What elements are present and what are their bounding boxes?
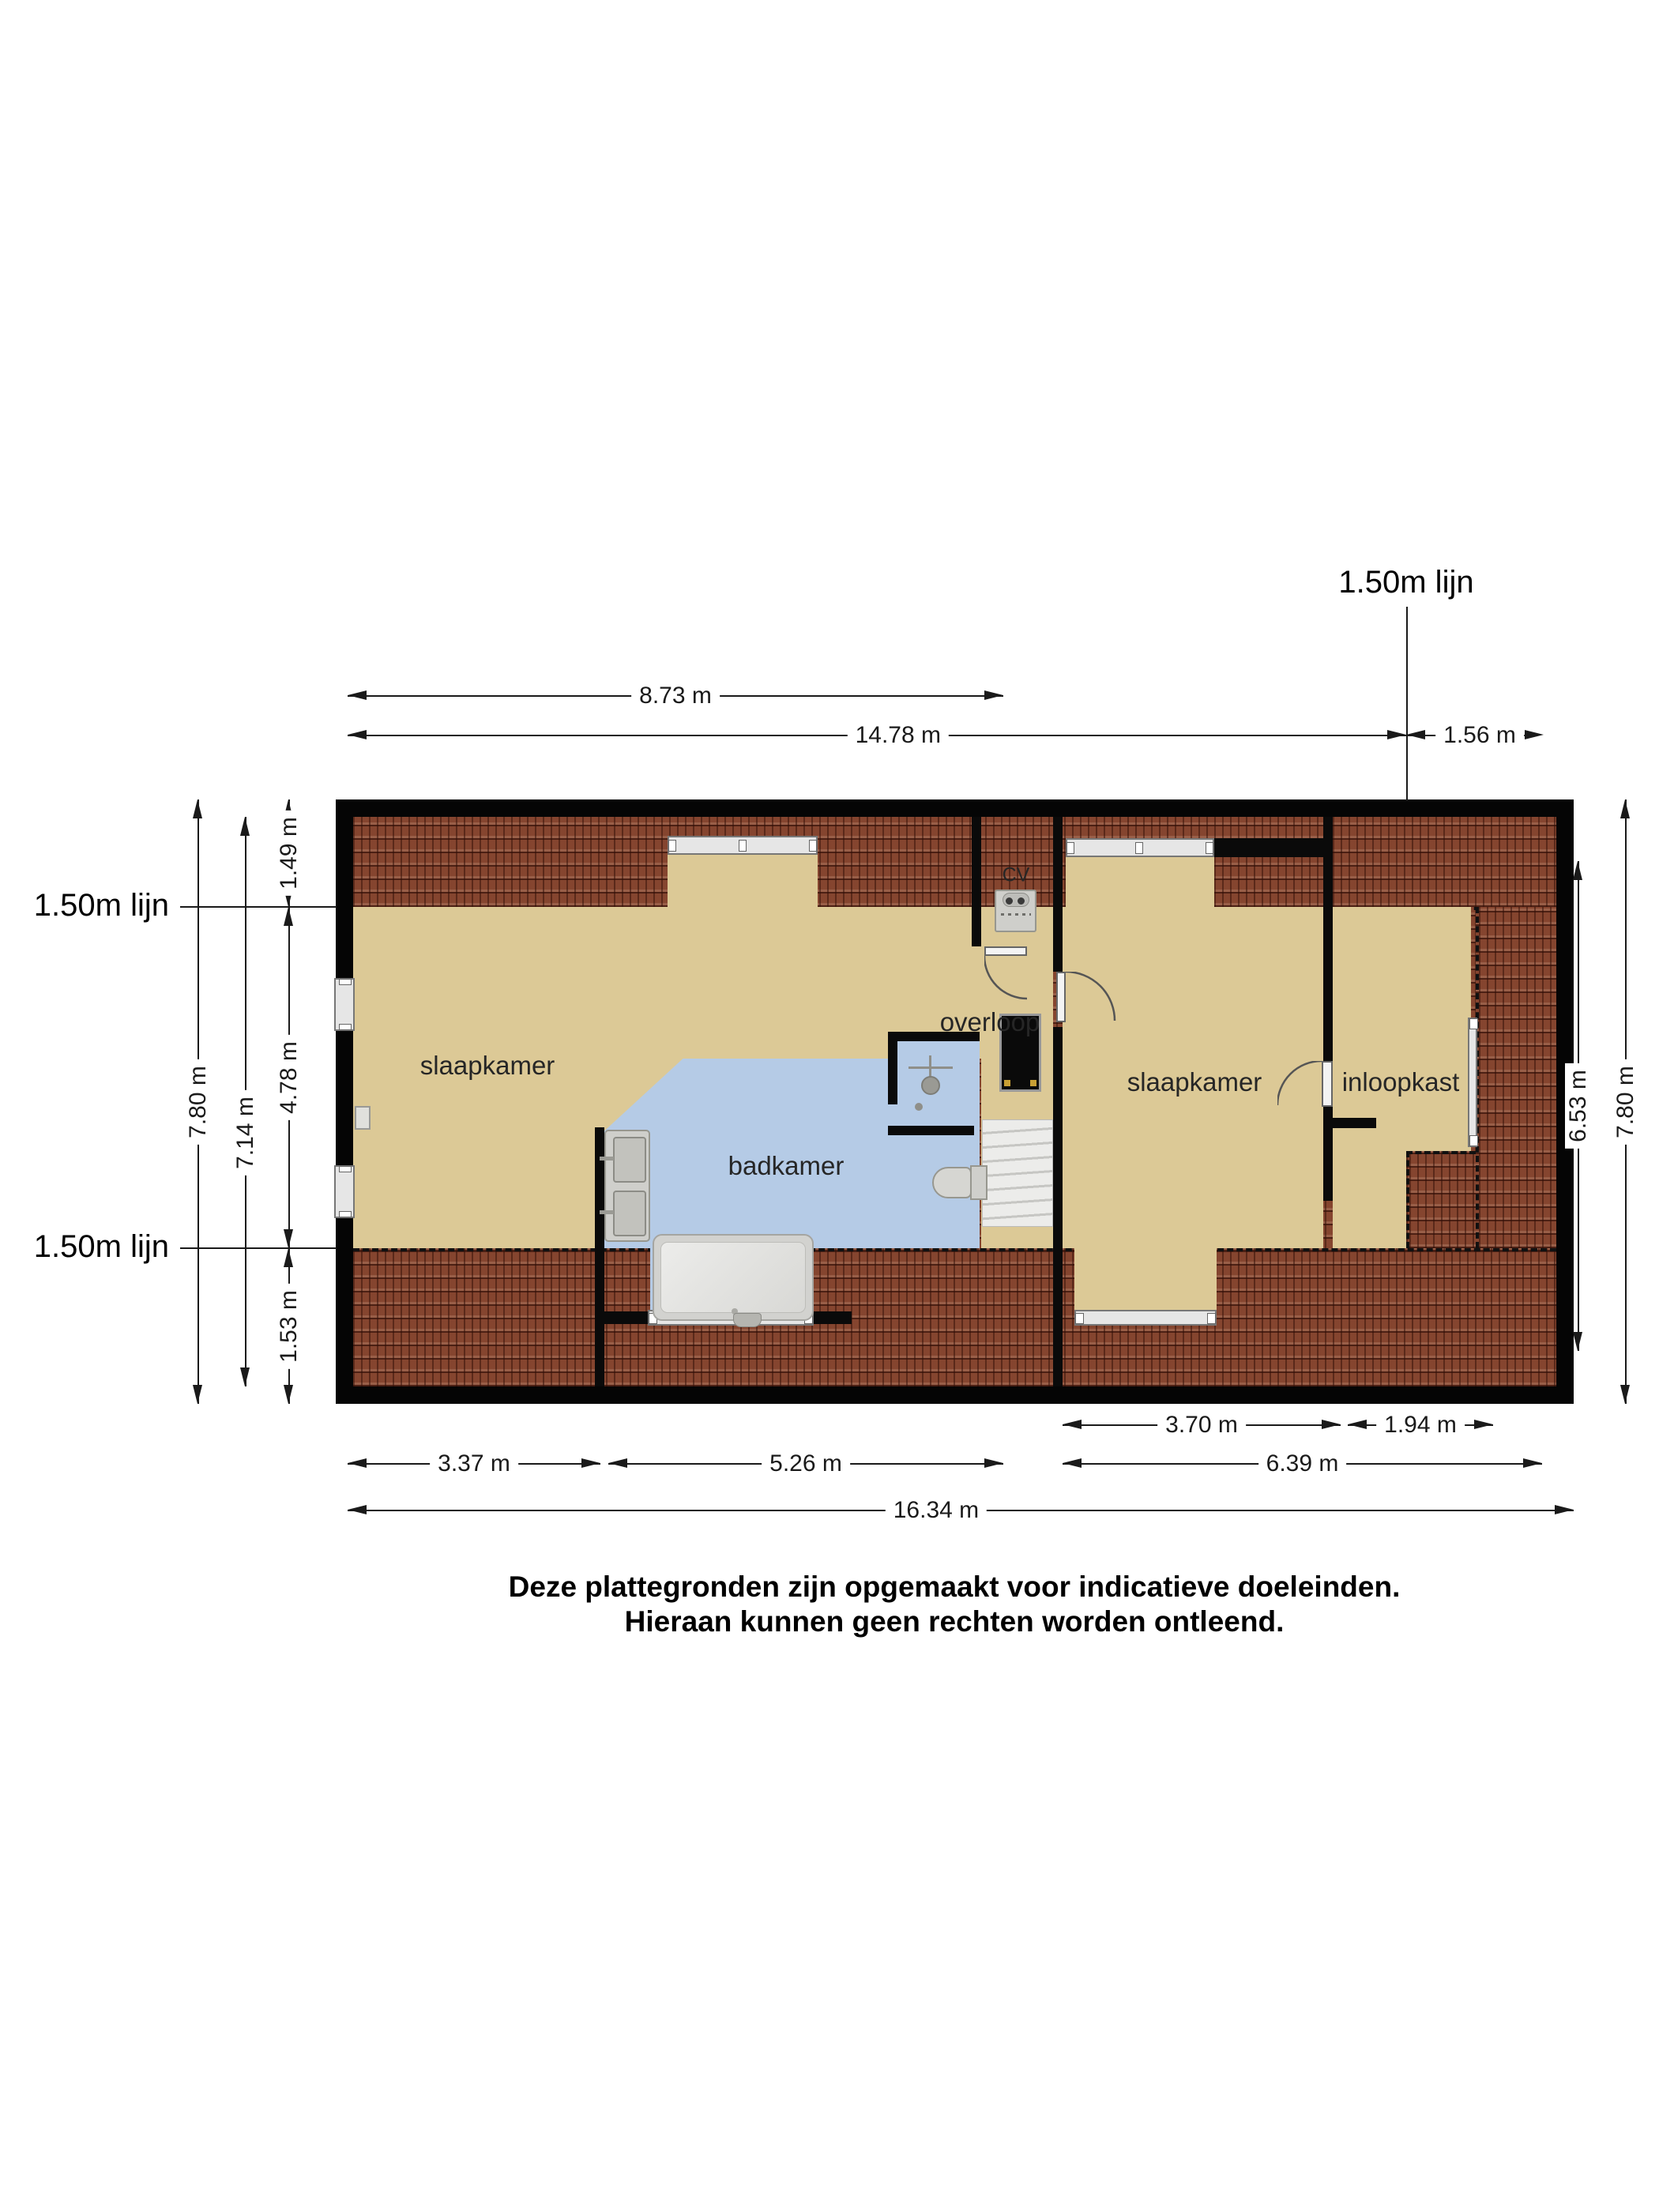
dormer-bottom-right-floor [1074,1248,1217,1311]
wall-closet-lower [1323,1106,1333,1201]
room-bedroom-left-floor-lower [353,1059,604,1248]
roof-notch-closet [1406,1151,1476,1248]
room-closet-floor [1333,907,1471,1151]
floorplan-page: { "plan": { "line_markers": { "top_right… [0,0,1659,2212]
fixture-double-sink [604,1130,650,1242]
wall-bath-dormer-left [604,1311,650,1324]
lijn-line-top-right [1406,607,1408,801]
room-label-cv: CV [1003,864,1030,887]
door-closet-leaf [1322,1061,1333,1107]
fixture-stairs [982,1119,1053,1227]
room-bedroom-left-floor [353,907,981,1059]
room-closet-floor-lower [1333,1151,1406,1248]
bathroom-corner-cut [604,1059,683,1131]
window-dormer-bottom-right [1074,1310,1217,1326]
room-label-bedroom-left: slaapkamer [420,1051,555,1081]
door-closet-arc [1277,1061,1323,1107]
room-label-bathroom: badkamer [728,1151,845,1181]
wall-shower-nook-left [888,1032,897,1104]
wall-dormer-tr-stub [1214,838,1330,857]
fixture-toilet [932,1163,987,1202]
lijn-label-left-upper: 1.50m lijn [25,888,169,924]
lijn-label-top-right: 1.50m lijn [1338,565,1473,600]
wall-toilet-divider [888,1126,974,1135]
door-landing-leaf [984,946,1027,956]
lijn-label-left-lower: 1.50m lijn [25,1229,169,1265]
disclaimer-line-1: Deze plattegronden zijn opgemaakt voor i… [125,1571,1659,1604]
dormer-top-left-floor [668,853,818,910]
disclaimer-line-2: Hieraan kunnen geen rechten worden ontle… [125,1605,1659,1638]
roof-band-right [1476,907,1556,1248]
wall-stairwell-lower [1053,1027,1063,1386]
window-closet-right [1468,1018,1477,1147]
roof-band-top [353,817,1556,910]
wall-closet-stub [1333,1118,1376,1128]
wall-bath-dormer-right [812,1311,852,1324]
dormer-top-right-floor [1066,856,1214,910]
wall-stairwell-upper [1053,817,1063,972]
window-left-lower [334,1165,355,1218]
fixture-shower-head [908,1055,956,1111]
room-label-closet: inloopkast [1342,1067,1460,1097]
wall-bedroom-bathroom [595,1127,604,1386]
fixture-bath-faucet [733,1313,762,1327]
lijn-line-left-upper [180,906,337,908]
roof-band-bottom [353,1248,1556,1386]
room-label-bedroom-right: slaapkamer [1127,1067,1262,1097]
lijn-line-left-lower [180,1247,337,1249]
door-bedroom-right-arc [1066,972,1116,1022]
fixture-radiator [355,1106,371,1130]
window-left-upper [334,978,355,1031]
wall-cv-left [972,817,981,946]
door-bedroom-right-leaf [1056,972,1066,1022]
window-dormer-top-right [1066,838,1214,857]
fixture-cv-unit [995,890,1036,932]
room-label-landing: overloop [940,1007,1040,1037]
window-dormer-top-left [668,836,818,855]
door-landing-arc [984,956,1029,1000]
fixture-bathtub [653,1234,814,1321]
